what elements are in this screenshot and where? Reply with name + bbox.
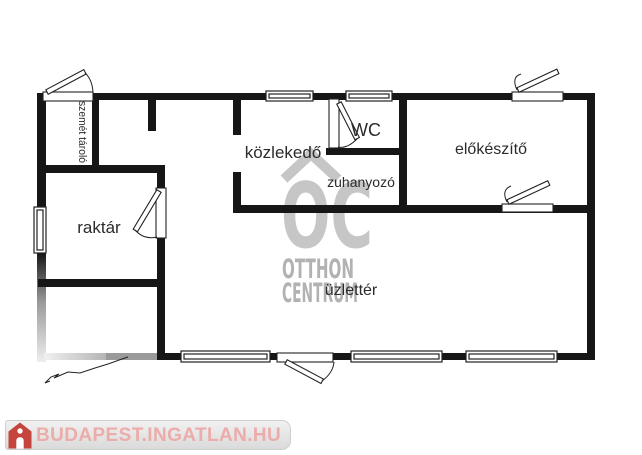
wall-raktar-bottom [38,279,165,287]
room-label-szemet-tarolo: szemét tároló [76,101,88,163]
wall-elokeszito-left [399,95,407,212]
window [34,207,46,253]
pencil-scribble [45,357,128,383]
door [43,70,93,101]
wall-szemet-right [92,95,99,172]
room-label-zuhanyozo: zuhanyozó [327,174,395,190]
wall-bottom-faded [44,353,106,360]
wall-left-faded [37,253,46,362]
window [351,351,442,362]
wall-bottom-gray [106,353,157,360]
room-label-wc: WC [351,120,381,140]
wall-raktar-right-upper [157,165,165,188]
room-label-elokeszito: előkészítő [455,141,527,158]
branding-text: BUDAPEST.INGATLAN.HU [36,426,281,445]
wall-stub-b [233,93,241,135]
window [181,351,270,362]
wall-raktar-right-lower [157,238,165,360]
door [277,353,334,383]
door [133,188,166,238]
branding-bar: BUDAPEST.INGATLAN.HU [5,420,291,450]
window [346,91,392,101]
house-icon-door [16,437,23,448]
wall-wc-bottom [326,148,407,155]
door [512,69,563,101]
house-icon-window [17,428,22,433]
window [266,91,313,101]
room-label-raktar: raktár [77,218,121,237]
floorplan-drawing: OC OTTHON CENTRUM [0,0,642,455]
room-label-kozlekedo: közlekedő [245,143,322,162]
floorplan-image: OC OTTHON CENTRUM [0,0,642,455]
wall-stub-a [148,93,156,131]
house-icon [8,422,32,449]
wall-right [587,93,595,360]
window [466,351,557,362]
room-label-uzletter: üzlettér [325,282,378,299]
door [502,181,553,212]
wall-szemet-bottom [38,165,165,173]
